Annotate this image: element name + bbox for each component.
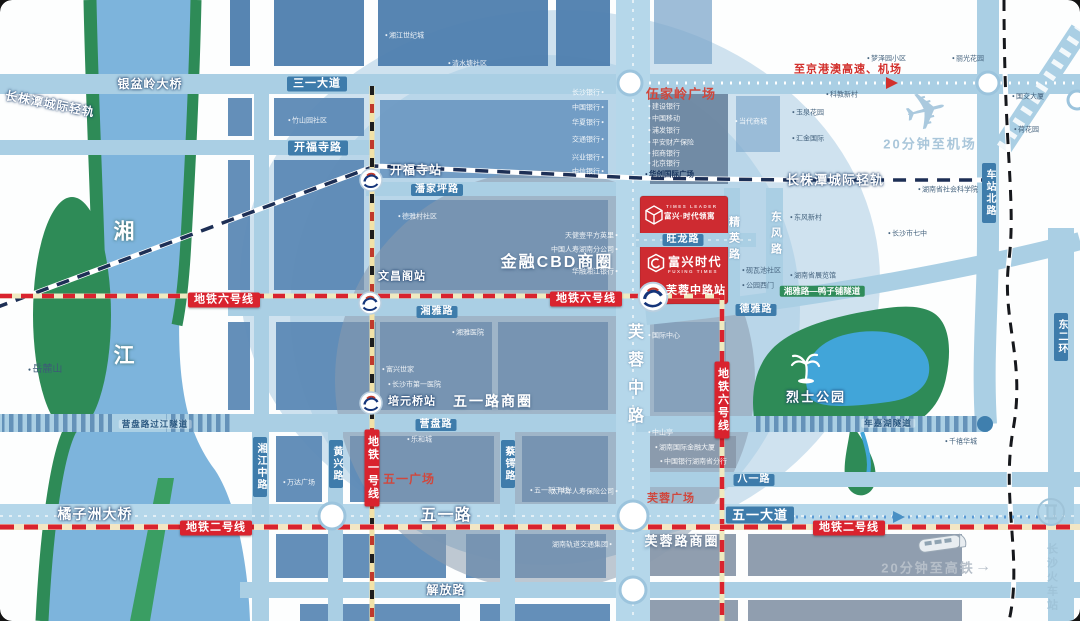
road-yingpan: 营盘路 bbox=[416, 419, 457, 431]
road-chezhan-north: 车站北路 bbox=[982, 163, 996, 223]
poi-label: 德雅村社区 bbox=[398, 214, 437, 221]
poi-label: 万达广场 bbox=[283, 480, 315, 487]
wuyi-square-label: 五一广场 bbox=[383, 473, 435, 485]
poi-label: 竹山园社区 bbox=[288, 118, 327, 125]
district-wuyilu: 五一路商圈 bbox=[453, 394, 533, 408]
railway-station-label: 长沙火车站 bbox=[1046, 543, 1057, 613]
road-wanglong: 旺龙路 bbox=[663, 234, 704, 246]
station-wenchangge: 文昌阁站 bbox=[378, 272, 426, 283]
poi-label: 清水塘社区 bbox=[448, 61, 487, 68]
poi-label: 东风新村 bbox=[790, 215, 822, 222]
poi-label: 湖南省展览馆 bbox=[790, 273, 836, 280]
metro-line1-label: 地铁一号线 bbox=[365, 430, 380, 507]
poi-label: 太平洋人寿保险公司 bbox=[551, 489, 618, 496]
location-map: 湘 江 岳麓山 银盆岭大桥 三一大道 开福寺路 潘家坪路 湘雅路 营盘路 营盘路… bbox=[0, 0, 1080, 621]
metro-line6-label-left: 地铁六号线 bbox=[188, 293, 260, 308]
poi-label: 长沙银行 bbox=[572, 90, 604, 97]
poi-label: 砚瓦池社区 bbox=[742, 268, 781, 275]
poi-label: 华创国际广场 bbox=[645, 170, 694, 178]
road-dongfeng: 东风路 bbox=[770, 211, 781, 259]
road-sanyi-avenue: 三一大道 bbox=[287, 77, 347, 92]
metro-line6-label-vertical: 地铁六号线 bbox=[715, 362, 730, 439]
poi-label: 国交大厦 bbox=[1012, 94, 1044, 101]
poi-label: 乐和城 bbox=[407, 437, 432, 444]
road-east-second-ring: 东二环 bbox=[1054, 313, 1068, 361]
road-juzizhou-bridge: 橘子洲大桥 bbox=[58, 507, 133, 521]
poi-label: 中国人寿湖南分公司 bbox=[551, 247, 618, 254]
metro-line6-label-center: 地铁六号线 bbox=[550, 292, 622, 307]
road-wuyi-avenue: 五一大道 bbox=[726, 507, 794, 524]
poi-label: 交通银行 bbox=[572, 137, 604, 144]
poi-label: 长沙市七中 bbox=[888, 231, 927, 238]
road-yinpenling-bridge: 银盆岭大桥 bbox=[117, 78, 182, 90]
poi-label: 梦泽园小区 bbox=[867, 56, 906, 63]
poi-label: 当代商城 bbox=[735, 119, 767, 126]
poi-label: 平安财产保险 bbox=[648, 140, 694, 147]
poi-label: 国际中心 bbox=[648, 333, 680, 340]
metro-station-icon bbox=[359, 292, 381, 314]
road-xiangjiang-middle: 湘江中路 bbox=[253, 437, 267, 497]
poi-label: 汇金国际 bbox=[792, 136, 824, 143]
metro-station-icon bbox=[360, 392, 382, 414]
poi-label: 中山亭 bbox=[648, 430, 673, 437]
poi-label: 天健壹平方英里 bbox=[565, 233, 618, 240]
tunnel-junction bbox=[977, 416, 993, 432]
project-logo-name: 富兴·时代领寓 bbox=[664, 212, 715, 220]
metro-line2-label-right: 地铁二号线 bbox=[813, 521, 885, 536]
metro-station-icon bbox=[360, 169, 382, 191]
yingpan-tunnel-label: 营盘路过江隧道 bbox=[119, 420, 192, 429]
yingpan-tunnel-hatch bbox=[2, 414, 112, 432]
yuelu-mountain-label: 岳麓山 bbox=[28, 365, 62, 375]
district-furonglu: 芙蓉路商圈 bbox=[644, 535, 719, 548]
metro-station-icon-furong bbox=[639, 283, 668, 312]
river-name-char1: 湘 bbox=[114, 222, 135, 243]
poi-label: 玉泉花园 bbox=[792, 110, 824, 117]
poi-label: 湖南轨道交通集团 bbox=[552, 542, 612, 549]
hsr-time-callout: 20分钟至高铁 bbox=[881, 562, 974, 575]
poi-label: 中国移动 bbox=[648, 116, 680, 123]
poi-label: 公园西门 bbox=[742, 283, 774, 290]
metro-line2-label-left: 地铁二号线 bbox=[180, 521, 252, 536]
poi-label: 富兴世家 bbox=[382, 367, 414, 374]
road-kaifusi: 开福寺路 bbox=[288, 141, 348, 156]
intercity-rail-label-east: 长株潭城际轻轨 bbox=[786, 174, 884, 187]
poi-label: 丽光花园 bbox=[952, 56, 984, 63]
road-huangxing: 黄兴路 bbox=[329, 440, 343, 488]
station-peiyuanqiao: 培元桥站 bbox=[388, 397, 436, 408]
nianjiahu-tunnel-label: 年嘉湖隧道 bbox=[861, 419, 915, 428]
poi-label: 湘江世纪城 bbox=[385, 33, 424, 40]
poi-label: 长沙市第一医院 bbox=[388, 382, 441, 389]
poi-label: 千禧华城 bbox=[945, 439, 977, 446]
road-bayi: 八一路 bbox=[734, 474, 775, 486]
station-kaifusi: 开福寺站 bbox=[390, 164, 442, 176]
martyrs-park-label: 烈士公园 bbox=[786, 391, 846, 404]
poi-label: 建设银行 bbox=[648, 104, 680, 111]
poi-label: 湖南省社会科学院 bbox=[918, 187, 978, 194]
road-panjiaping: 潘家坪路 bbox=[411, 184, 463, 196]
road-jingying: 精英路 bbox=[728, 216, 739, 264]
poi-label: 中国银行 bbox=[572, 105, 604, 112]
project-name-en: FUXING TIMES bbox=[668, 270, 718, 275]
poi-label: 浦发银行 bbox=[648, 128, 680, 135]
poi-label: 招商银行 bbox=[648, 151, 680, 158]
highway-callout: 至京港澳高速、机场 bbox=[794, 65, 902, 76]
poi-label: 中信银行 bbox=[572, 169, 604, 176]
road-wuyi: 五一路 bbox=[420, 508, 471, 524]
west-bank-green bbox=[33, 197, 111, 433]
station-furong-middle: 芙蓉中路站 bbox=[666, 286, 726, 297]
poi-label: 湖南国际金融大厦 bbox=[655, 445, 715, 452]
project-name: 富兴时代 bbox=[668, 256, 722, 268]
poi-label: 华夏银行 bbox=[572, 120, 604, 127]
road-jiefang: 解放路 bbox=[426, 584, 465, 596]
road-furong-middle: 芙蓉中路 bbox=[625, 323, 641, 435]
poi-label: 北京银行 bbox=[648, 161, 680, 168]
road-ca ie: 蔡锷路 bbox=[501, 440, 515, 488]
airport-time-callout: 20分钟至机场 bbox=[883, 138, 976, 151]
poi-label: 中国银行湖南省分行 bbox=[660, 459, 727, 466]
project-logo-en: TIMES LEADER bbox=[666, 205, 718, 210]
poi-label: 兴业银行 bbox=[572, 155, 604, 162]
poi-label: 华融湘江银行 bbox=[572, 269, 618, 276]
river-name-char2: 江 bbox=[114, 346, 135, 367]
road-xiangya: 湘雅路 bbox=[417, 306, 458, 318]
poi-label: 荷花园 bbox=[1014, 127, 1039, 134]
road-deya: 德雅路 bbox=[736, 304, 777, 316]
poi-label: 科教新村 bbox=[826, 92, 858, 99]
furong-square-label: 芙蓉广场 bbox=[647, 494, 695, 505]
district-wujialing: 伍家岭广场 bbox=[646, 88, 716, 101]
hsr-arrow: → bbox=[975, 559, 993, 575]
poi-label: 湘雅医院 bbox=[452, 330, 484, 337]
yazipu-tunnel-label: 湘雅路—鸭子铺隧道 bbox=[780, 286, 865, 297]
